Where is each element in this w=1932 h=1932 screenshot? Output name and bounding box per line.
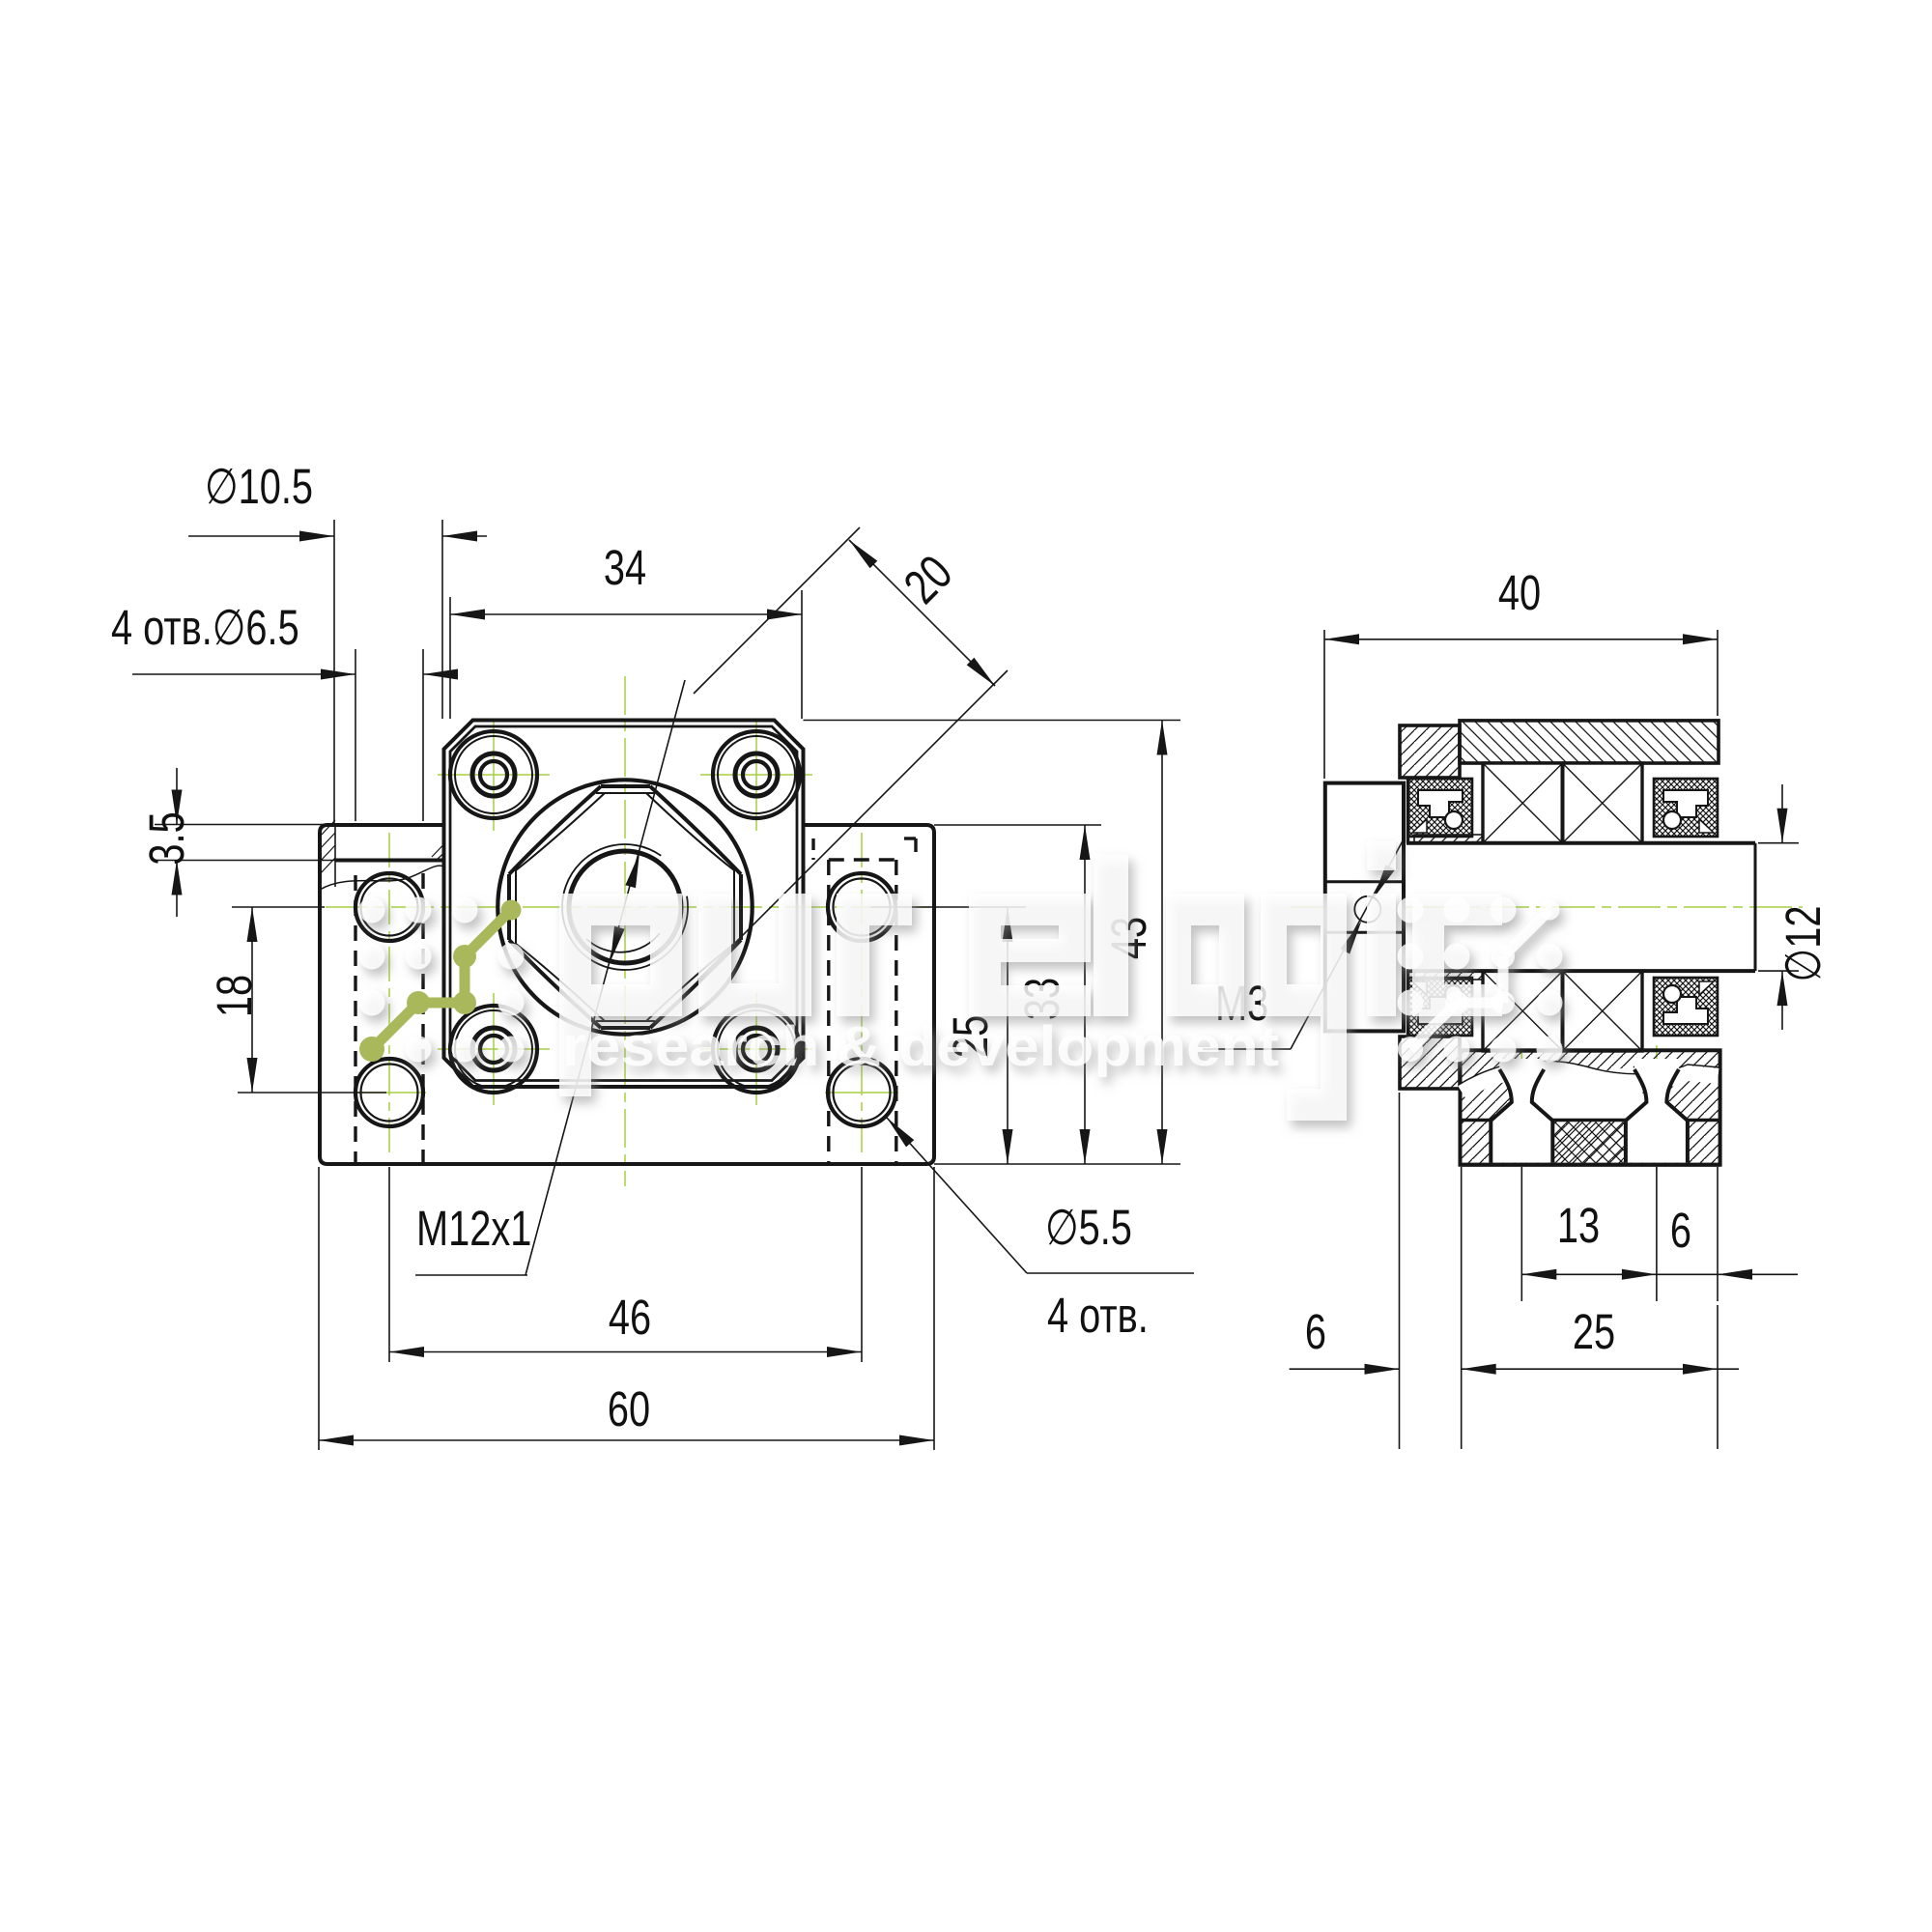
svg-text:6: 6 (1670, 1203, 1691, 1258)
svg-text:60: 60 (608, 1381, 650, 1436)
svg-text:13: 13 (1557, 1198, 1600, 1253)
svg-text:18: 18 (207, 975, 262, 1017)
svg-text:25: 25 (1573, 1304, 1615, 1359)
svg-text:research & development: research & development (562, 1015, 1279, 1078)
svg-text:∅12: ∅12 (1776, 906, 1831, 982)
svg-text:46: 46 (609, 1290, 651, 1345)
svg-text:40: 40 (1498, 565, 1541, 620)
svg-text:∅5.5: ∅5.5 (1045, 1200, 1132, 1255)
svg-text:34: 34 (604, 540, 646, 595)
svg-text:6: 6 (1305, 1304, 1326, 1359)
svg-text:4 отв.: 4 отв. (1047, 1288, 1149, 1343)
svg-text:∅10.5: ∅10.5 (205, 459, 313, 514)
svg-text:M12x1: M12x1 (416, 1201, 531, 1256)
svg-text:3.5: 3.5 (139, 811, 194, 865)
svg-text:4 отв.∅6.5: 4 отв.∅6.5 (111, 600, 299, 655)
